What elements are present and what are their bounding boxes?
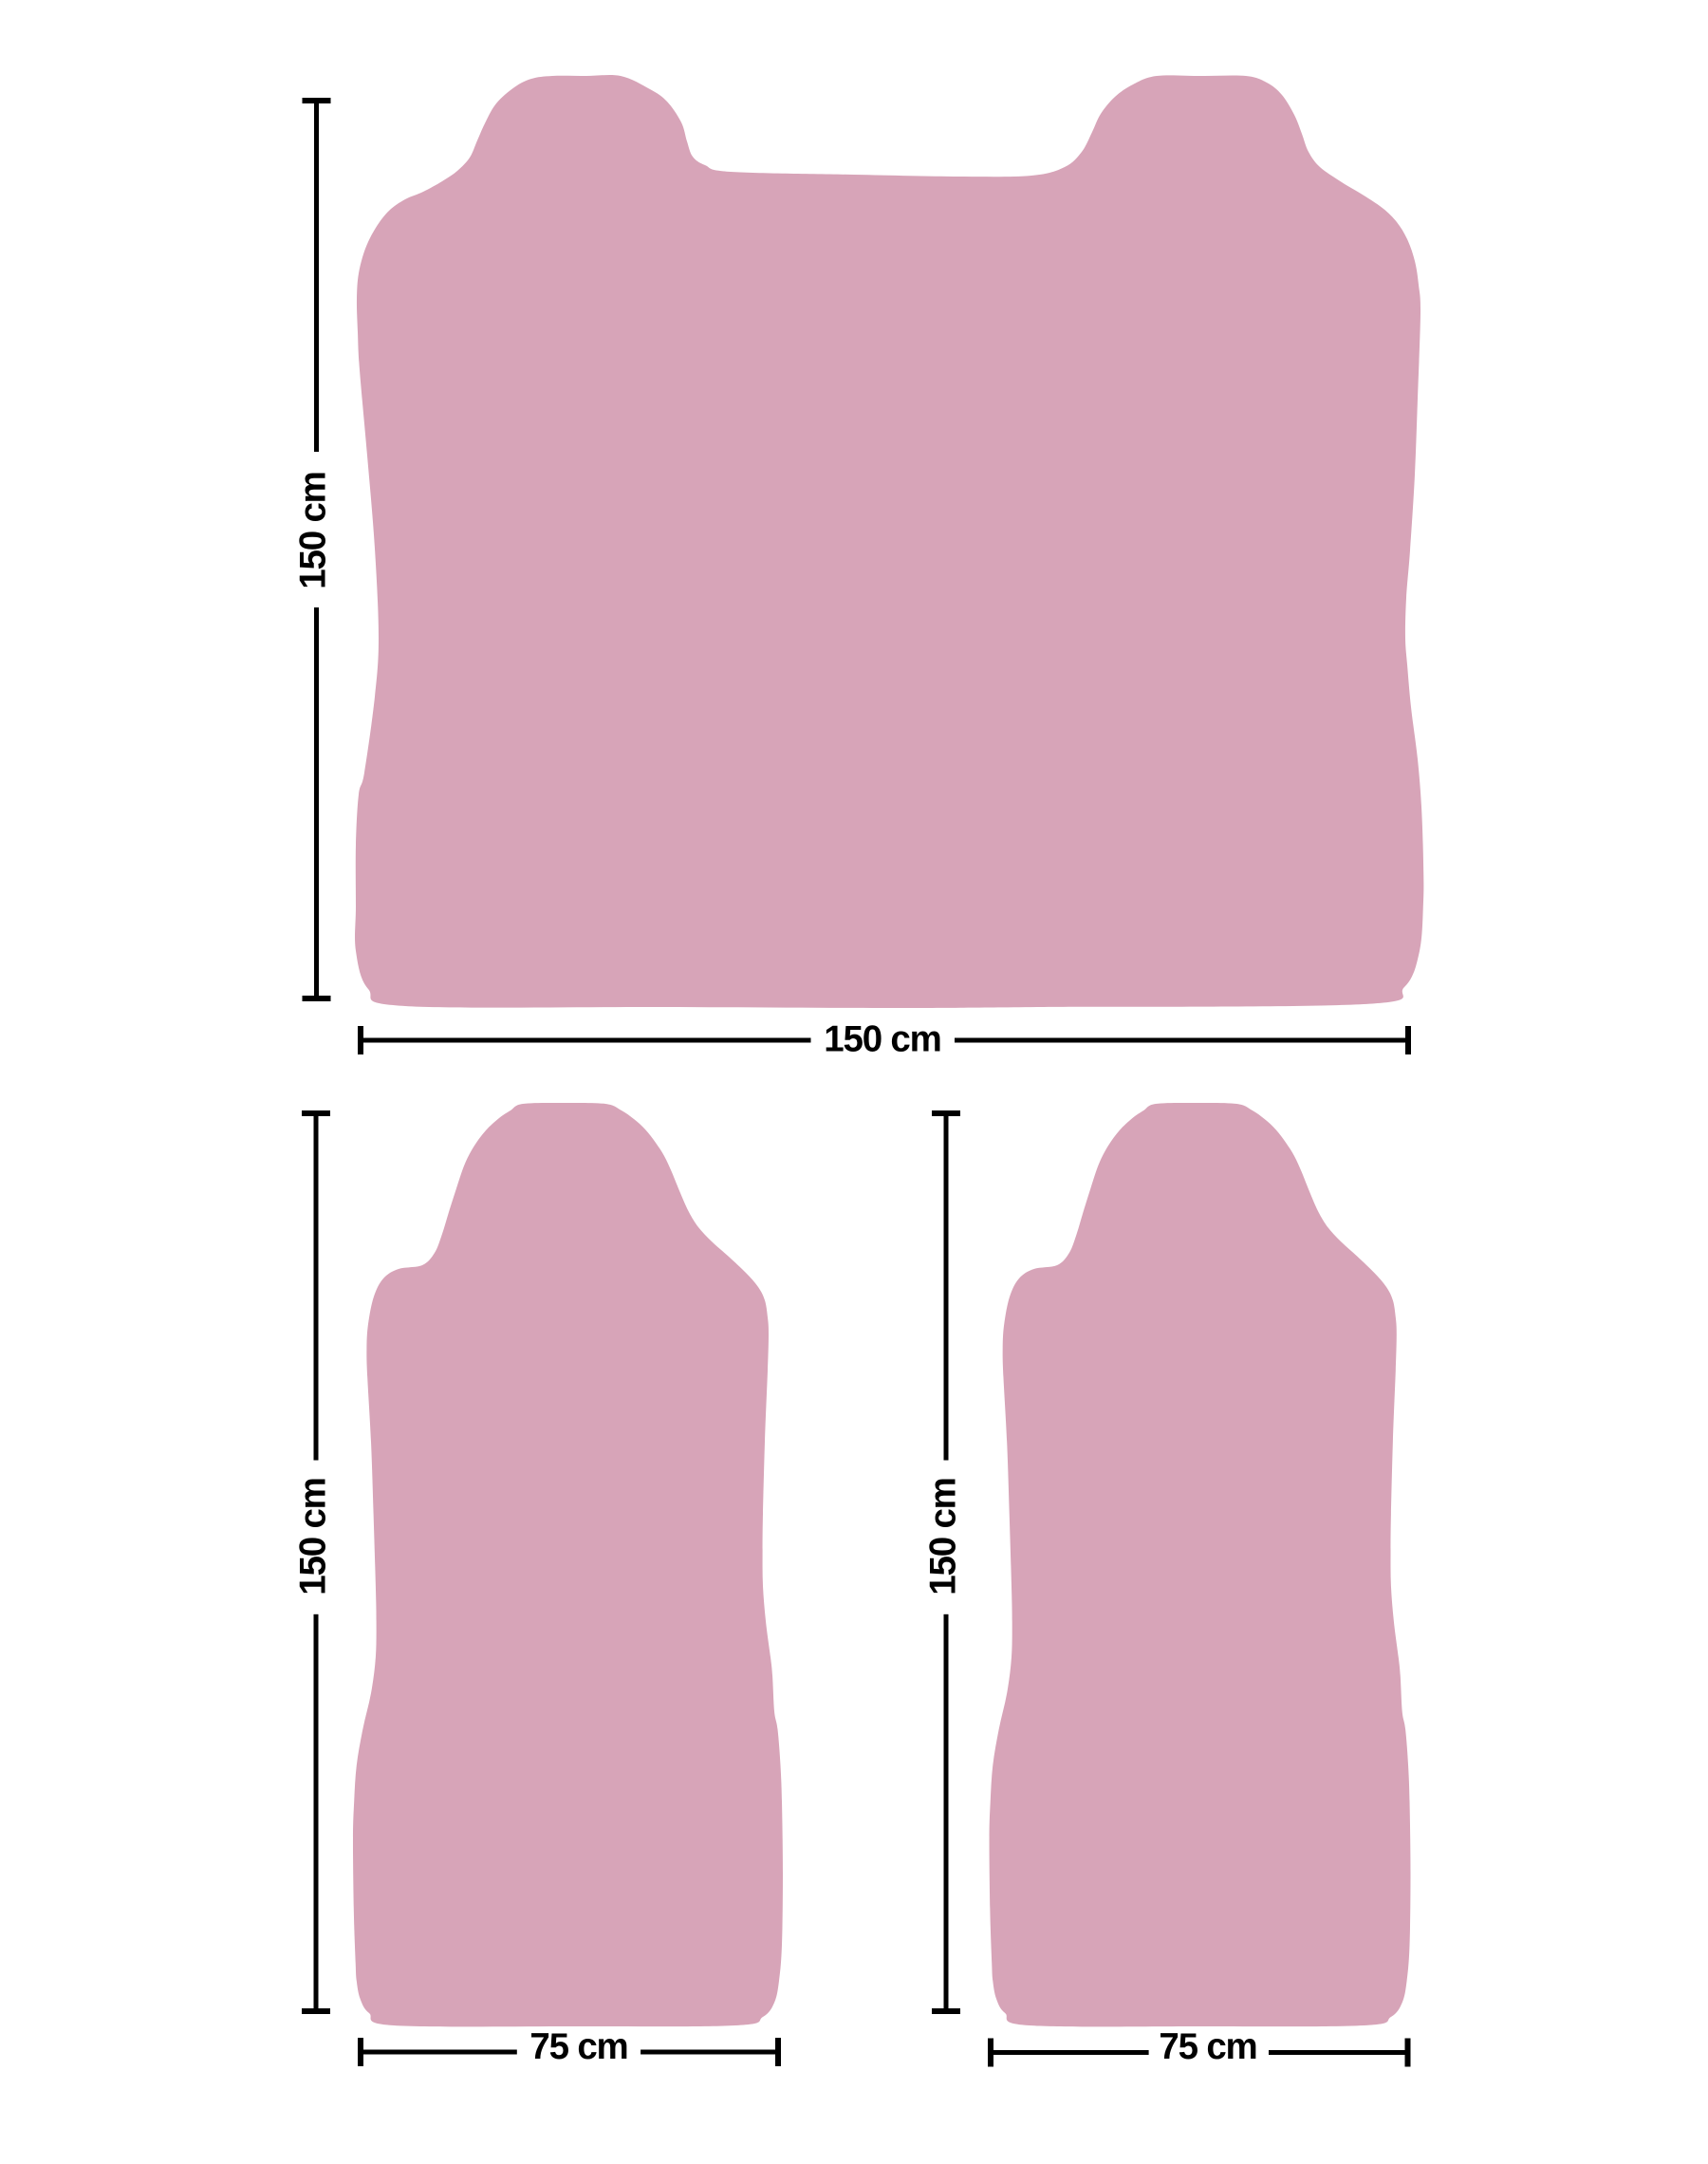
svg-text:150 cm: 150 cm — [824, 1018, 940, 1059]
svg-text:75 cm: 75 cm — [1159, 2026, 1256, 2067]
svg-text:150 cm: 150 cm — [292, 1478, 333, 1595]
svg-text:150 cm: 150 cm — [922, 1478, 963, 1595]
svg-text:75 cm: 75 cm — [529, 2026, 627, 2067]
svg-text:150 cm: 150 cm — [292, 472, 333, 588]
